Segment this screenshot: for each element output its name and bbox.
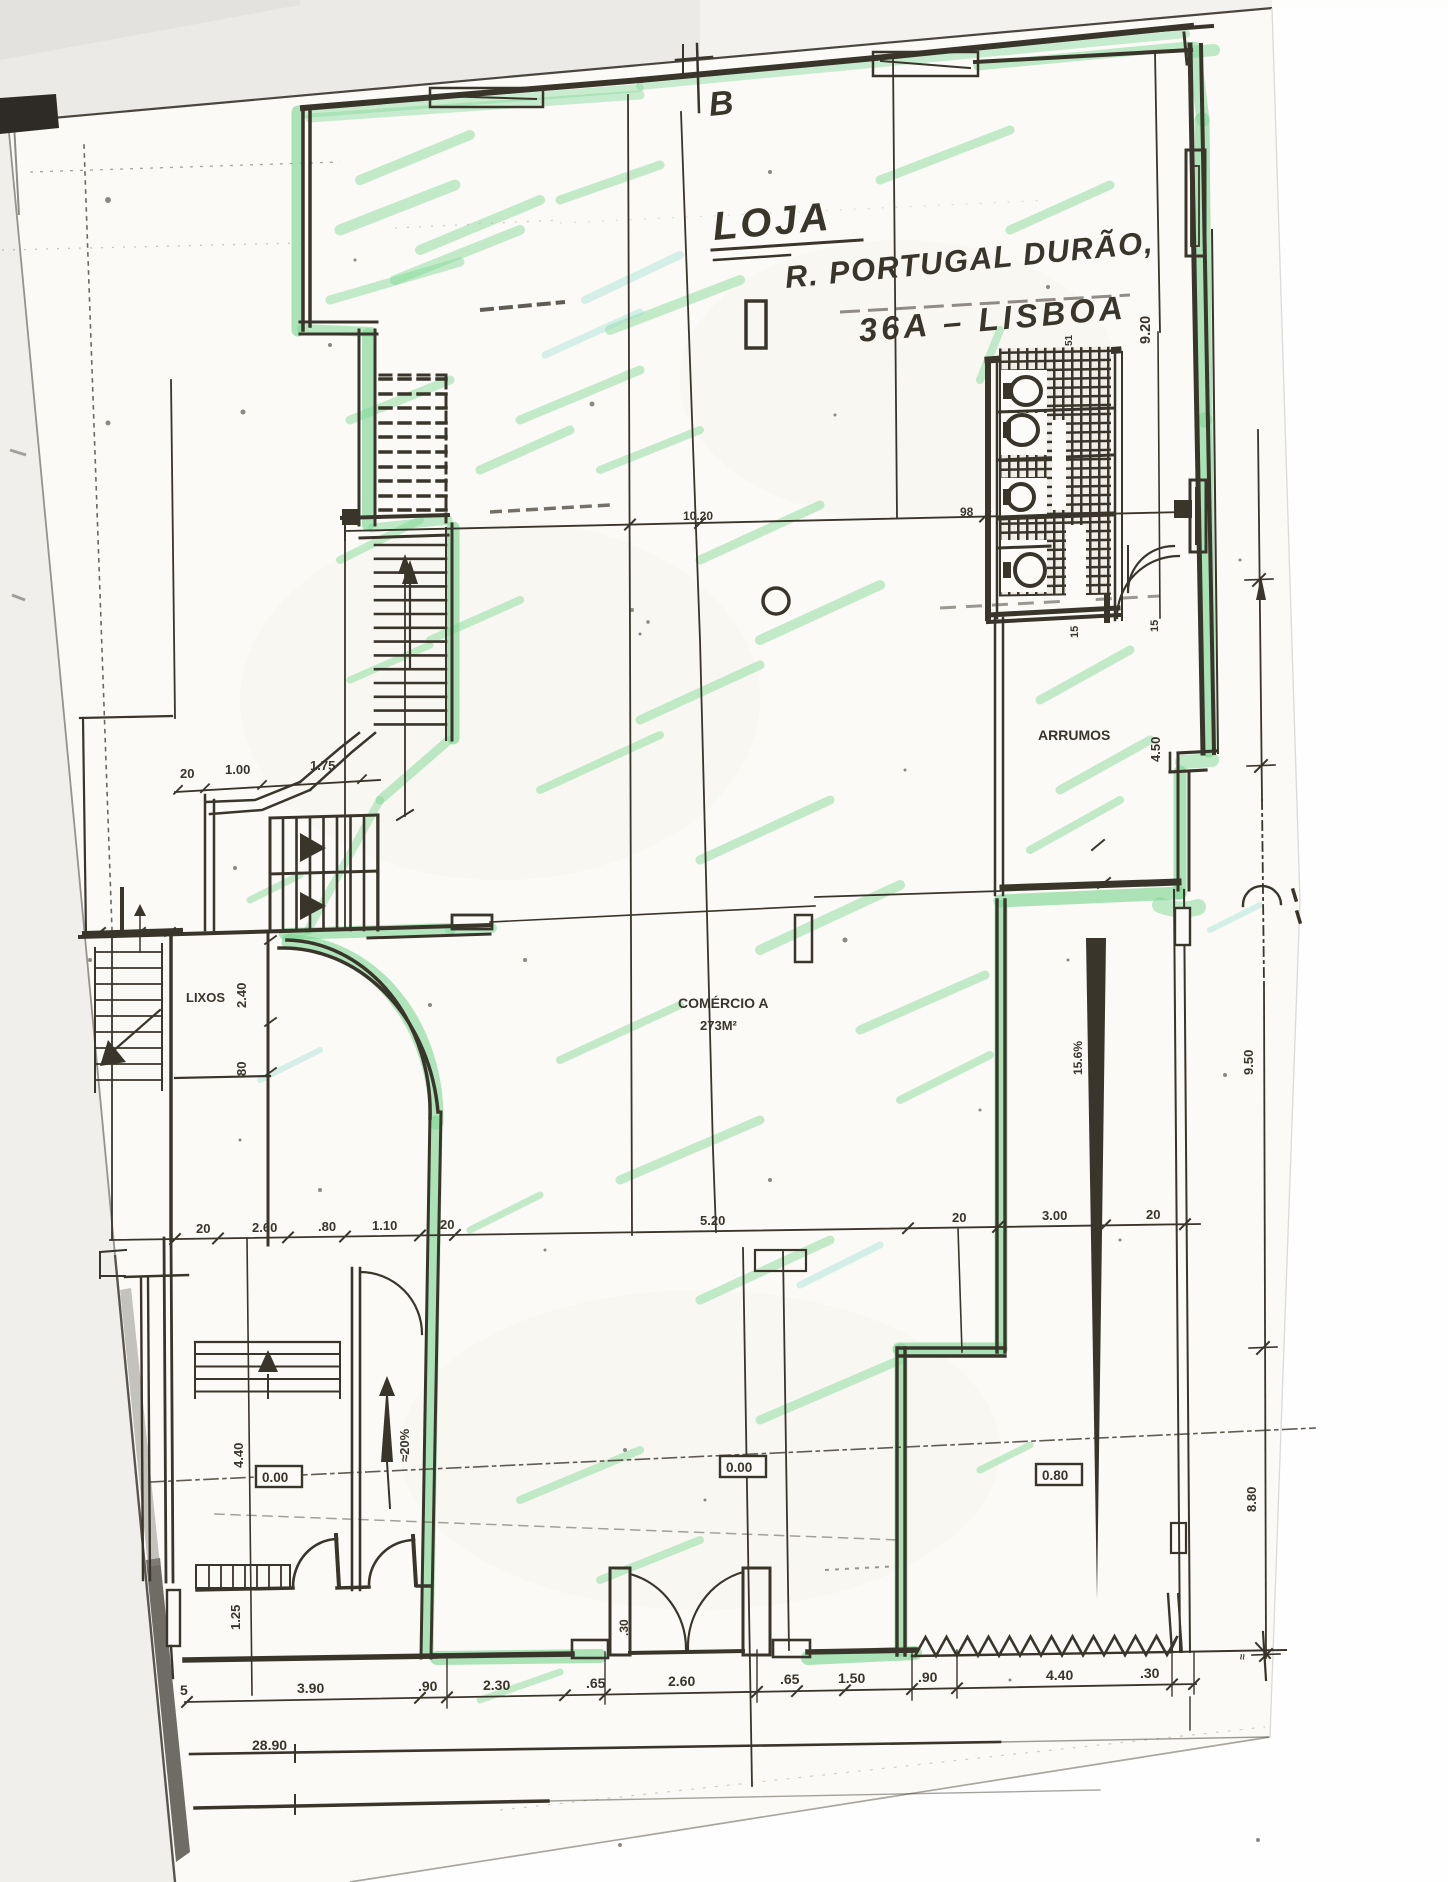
svg-text:5.20: 5.20 (700, 1213, 725, 1228)
svg-text:20: 20 (952, 1210, 966, 1225)
svg-text:≈: ≈ (1237, 1654, 1249, 1660)
svg-text:1.50: 1.50 (838, 1670, 865, 1686)
svg-text:5: 5 (180, 1682, 188, 1698)
svg-text:2.60: 2.60 (668, 1673, 695, 1689)
svg-text:10.20: 10.20 (683, 509, 713, 523)
svg-text:0.80: 0.80 (1042, 1468, 1068, 1483)
svg-text:0.00: 0.00 (726, 1460, 752, 1475)
svg-text:2.60: 2.60 (252, 1220, 277, 1235)
svg-text:COMÉRCIO A: COMÉRCIO A (678, 995, 768, 1011)
svg-text:9.50: 9.50 (1241, 1050, 1256, 1075)
svg-text:80: 80 (234, 1062, 249, 1076)
svg-text:1.10: 1.10 (372, 1218, 397, 1233)
svg-text:20: 20 (1146, 1207, 1160, 1222)
svg-text:20: 20 (196, 1221, 210, 1236)
svg-text:20: 20 (180, 766, 194, 781)
svg-text:2.30: 2.30 (483, 1677, 510, 1693)
svg-text:20: 20 (440, 1217, 454, 1232)
svg-text:2.40: 2.40 (234, 983, 249, 1008)
svg-text:3.00: 3.00 (1042, 1208, 1067, 1223)
svg-text:273M²: 273M² (700, 1018, 738, 1033)
svg-text:15.6%: 15.6% (1071, 1041, 1085, 1075)
svg-text:.65: .65 (780, 1671, 800, 1687)
svg-text:.30: .30 (1140, 1665, 1160, 1681)
svg-text:1.00: 1.00 (225, 762, 250, 777)
svg-text:ARRUMOS: ARRUMOS (1038, 727, 1110, 743)
svg-text:.90: .90 (418, 1678, 438, 1694)
svg-text:.90: .90 (918, 1669, 938, 1685)
svg-text:B: B (707, 84, 735, 124)
svg-text:≈20%: ≈20% (397, 1428, 412, 1462)
svg-text:4.40: 4.40 (231, 1443, 246, 1468)
svg-text:4.40: 4.40 (1046, 1667, 1073, 1683)
svg-text:.30: .30 (617, 1619, 631, 1636)
svg-text:8.80: 8.80 (1244, 1487, 1259, 1512)
svg-text:28.90: 28.90 (252, 1737, 287, 1753)
svg-text:51: 51 (1064, 334, 1075, 346)
svg-text:.80: .80 (318, 1219, 336, 1234)
svg-text:4.50: 4.50 (1148, 737, 1163, 762)
svg-text:.65: .65 (586, 1675, 606, 1691)
svg-text:0.00: 0.00 (262, 1470, 288, 1485)
svg-text:98: 98 (960, 505, 974, 519)
svg-text:15: 15 (1149, 620, 1161, 632)
svg-text:LIXOS: LIXOS (186, 990, 225, 1005)
svg-text:9.20: 9.20 (1138, 316, 1154, 344)
svg-text:1.75: 1.75 (310, 758, 335, 773)
svg-text:1.25: 1.25 (228, 1605, 243, 1630)
svg-text:3.90: 3.90 (297, 1680, 324, 1696)
svg-text:15: 15 (1069, 626, 1081, 638)
